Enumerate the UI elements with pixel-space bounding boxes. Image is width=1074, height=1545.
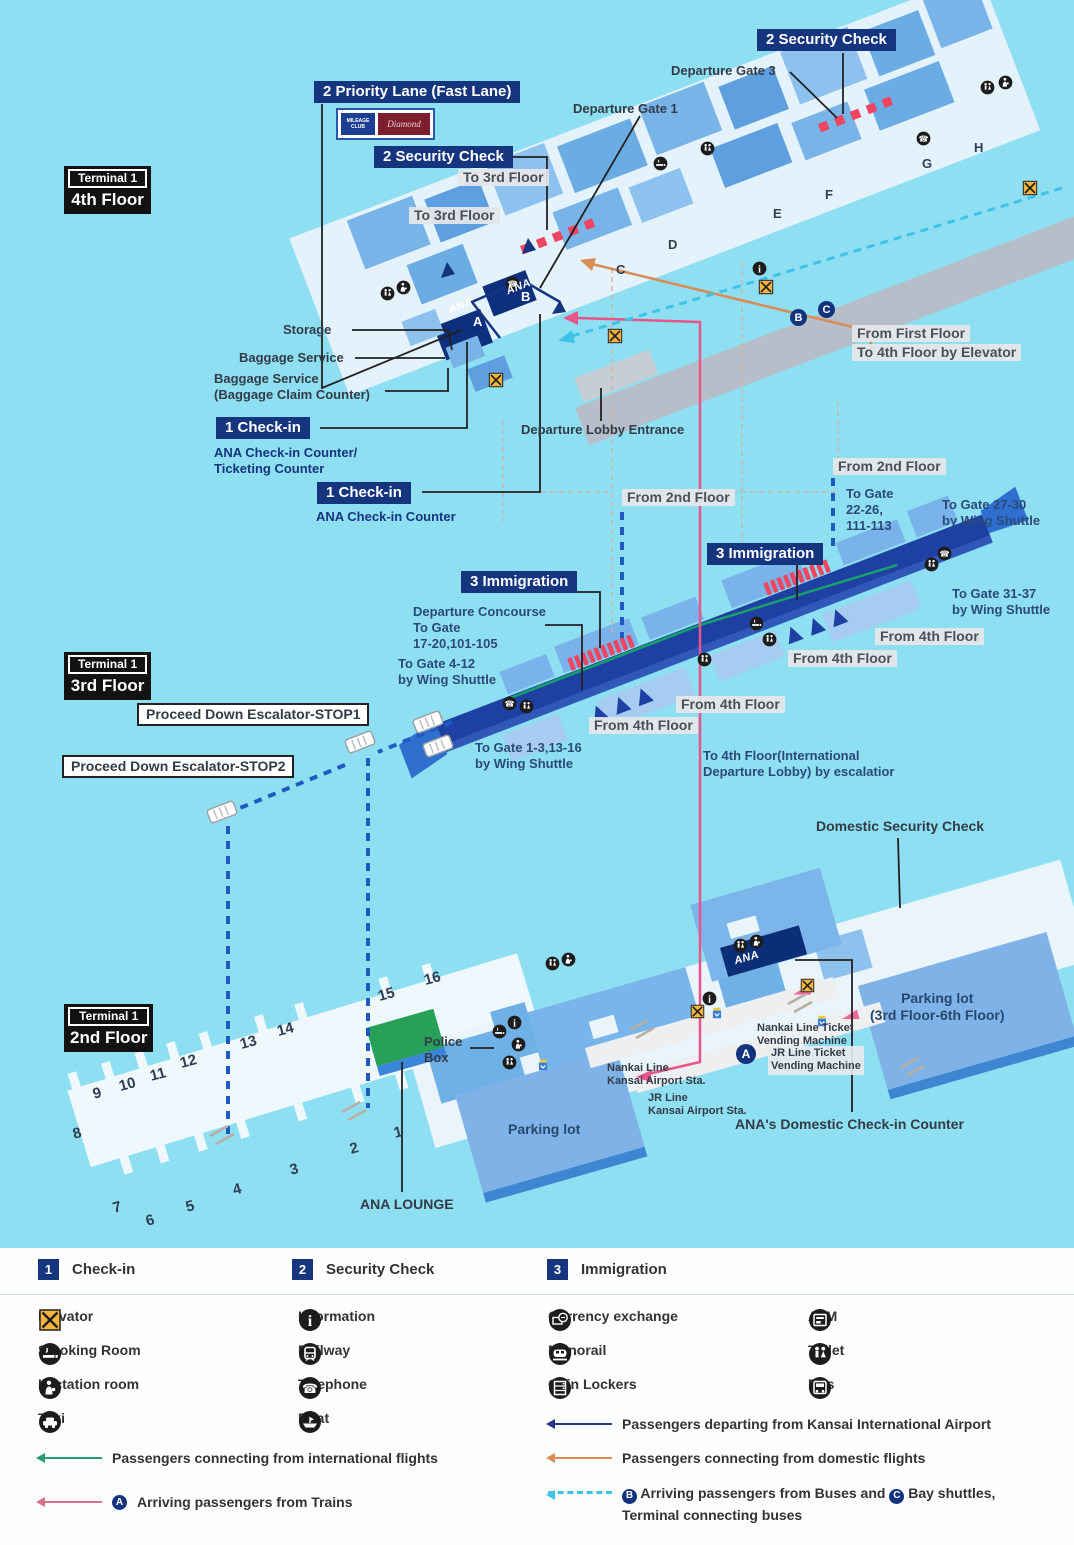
step-label: Check-in	[72, 1261, 135, 1278]
elevator-point-b-badge: B	[790, 309, 807, 326]
legend-smoking-room: Smoking Room	[38, 1342, 141, 1358]
toilet-icon	[698, 653, 712, 667]
label-departure-lobby-entrance: Departure Lobby Entrance	[521, 422, 684, 438]
toilet-icon	[546, 957, 560, 971]
international-route-line	[38, 1457, 102, 1459]
step-number: 1	[38, 1259, 59, 1280]
building-letter-d: D	[668, 237, 677, 252]
terminal-name: Terminal 1	[68, 655, 147, 674]
text-line: Kansai Airport Sta.	[607, 1075, 706, 1088]
label-from-2nd-floor-right: From 2nd Floor	[833, 458, 946, 475]
monorail-icon	[548, 1342, 572, 1366]
label-parking-lot-left: Parking lot	[508, 1121, 580, 1138]
legend-elevator: Elevator	[38, 1308, 93, 1324]
floor-badge-2f: Terminal 1 2nd Floor	[64, 1004, 153, 1052]
label-from-4th-floor-2: From 4th Floor	[788, 650, 897, 667]
label-ana-domestic: ANA's Domestic Check-in Counter	[735, 1116, 964, 1133]
step-number: 2	[292, 1259, 313, 1280]
lactation-room-icon	[999, 76, 1013, 90]
label-nankai-station: Nankai Line Kansai Airport Sta.	[607, 1062, 706, 1089]
telephone-icon	[938, 547, 952, 561]
text-line: ANA Check-in Counter/	[214, 445, 357, 461]
label-jr-tvm: JR Line Ticket Vending Machine	[768, 1046, 864, 1075]
text-line: Departure Lobby) by escalatior	[703, 764, 894, 780]
label-jr-station: JR Line Kansai Airport Sta.	[648, 1092, 747, 1119]
badge-c: C	[889, 1489, 904, 1504]
legend-route-buses: B Arriving passengers from Buses and C B…	[548, 1482, 1042, 1527]
text-line: (3rd Floor-6th Floor)	[870, 1007, 1005, 1024]
taxi-icon	[38, 1410, 62, 1434]
text-line: 111-113	[846, 518, 893, 534]
legend-coin-lockers: Coin Lockers	[548, 1376, 637, 1392]
legend-divider	[0, 1294, 1074, 1295]
text-line: To Gate 27-30	[942, 497, 1040, 513]
text-line: 22-26,	[846, 502, 893, 518]
text-line: Departure Concourse	[413, 604, 546, 620]
label-to-gate-1-3: To Gate 1-3,13-16 by Wing Shuttle	[475, 740, 582, 772]
label-checkin-b: 1 Check-in	[317, 482, 411, 504]
label-from-4th-floor-3: From 4th Floor	[676, 696, 785, 713]
floor-name: 3rd Floor	[68, 676, 147, 697]
lactation-room-icon	[562, 953, 576, 967]
toilet-icon	[925, 558, 939, 572]
terminal-name: Terminal 1	[68, 1007, 149, 1026]
label-departure-gate-3: Departure Gate 3	[671, 63, 776, 79]
label-to-gate-31-37: To Gate 31-37 by Wing Shuttle	[952, 586, 1050, 618]
label-immigration-left: 3 Immigration	[461, 571, 577, 593]
label-from-4th-floor-1: From 4th Floor	[875, 628, 984, 645]
atm-icon	[808, 1308, 832, 1332]
floor2	[63, 860, 1074, 1203]
badge-b: B	[622, 1489, 637, 1504]
coin-lockers-icon	[548, 1376, 572, 1400]
lactation-room-icon	[512, 1038, 526, 1052]
building-letter-c: C	[616, 262, 625, 277]
text-line: Baggage Service	[214, 371, 370, 387]
text-line: by Wing Shuttle	[942, 513, 1040, 529]
smoking-room-icon	[750, 617, 764, 631]
smoking-room-icon	[654, 157, 668, 171]
railway-icon	[298, 1342, 322, 1366]
label-checkin-b-sub: ANA Check-in Counter	[316, 509, 456, 525]
telephone-icon	[298, 1376, 322, 1400]
route-label: Arriving passengers from Trains	[137, 1494, 353, 1510]
building-letter-e: E	[773, 206, 782, 221]
train-arrival-a-badge: A	[736, 1044, 756, 1064]
priority-lane-cards: MILEAGE CLUB Diamond	[336, 108, 435, 140]
elevator-point-c-badge: C	[818, 301, 835, 318]
legend-bus: Bus	[808, 1376, 834, 1392]
route-label: Passengers connecting from domestic flig…	[622, 1450, 925, 1466]
trains-route-line	[38, 1501, 102, 1503]
smoking-room-icon	[493, 1025, 507, 1039]
route-label: Passengers departing from Kansai Interna…	[622, 1416, 991, 1432]
label-departure-gate-1: Departure Gate 1	[573, 101, 678, 117]
legend-route-international: Passengers connecting from international…	[38, 1450, 438, 1466]
label-checkin-a: 1 Check-in	[216, 417, 310, 439]
lactation-room-icon	[38, 1376, 62, 1400]
label-nankai-tvm: Nankai Line Ticket Vending Machine	[757, 1022, 853, 1049]
label-from-2nd-floor-mid: From 2nd Floor	[622, 489, 735, 506]
label-to-4th-floor-intl: To 4th Floor(International Departure Lob…	[703, 748, 894, 780]
buses-route-line	[548, 1491, 612, 1494]
label-departure-concourse: Departure Concourse To Gate 17-20,101-10…	[413, 604, 546, 652]
toilet-icon	[701, 142, 715, 156]
text-line: Box	[424, 1050, 462, 1066]
building-letter-h: H	[974, 140, 983, 155]
text-line: To Gate 1-3,13-16	[475, 740, 582, 756]
mileage-club-badge: MILEAGE CLUB	[341, 113, 375, 135]
telephone-icon	[917, 132, 931, 146]
text-line: To Gate 31-37	[952, 586, 1050, 602]
text-line: Police	[424, 1034, 462, 1050]
legend-telephone: Telephone	[298, 1376, 367, 1392]
legend-step-security: 2 Security Check	[292, 1259, 434, 1280]
building-letter-g: G	[922, 156, 932, 171]
toilet-icon	[734, 939, 748, 953]
ticket-machine-icon	[713, 1008, 721, 1019]
text-line: Vending Machine	[771, 1060, 861, 1073]
label-to-gate-27-30: To Gate 27-30 by Wing Shuttle	[942, 497, 1040, 529]
text-line: To 4th Floor(International	[703, 748, 894, 764]
label-checkin-a-sub: ANA Check-in Counter/ Ticketing Counter	[214, 445, 357, 477]
boat-icon	[298, 1410, 322, 1434]
toilet-icon	[503, 1056, 517, 1070]
label-to-gate-4-12: To Gate 4-12 by Wing Shuttle	[398, 656, 496, 688]
elevator-icon	[608, 329, 621, 342]
diamond-badge: Diamond	[378, 113, 430, 135]
step-label: Immigration	[581, 1261, 667, 1278]
text-line: JR Line	[648, 1092, 747, 1105]
label-from-first-floor: From First Floor To 4th Floor by Elevato…	[852, 325, 1021, 361]
step-number: 3	[547, 1259, 568, 1280]
legend: 1 Check-in 2 Security Check 3 Immigratio…	[0, 1248, 1074, 1545]
text-line: by Wing Shuttle	[952, 602, 1050, 618]
legend-toilet: Toilet	[808, 1342, 844, 1358]
text-line: To Gate	[413, 620, 546, 636]
legend-railway: Railway	[298, 1342, 350, 1358]
label-escalator-stop2: Proceed Down Escalator-STOP2	[62, 755, 294, 778]
label-baggage-claim: Baggage Service (Baggage Claim Counter)	[214, 371, 370, 403]
lactation-room-icon	[397, 281, 411, 295]
text-line: Nankai Line Ticket	[757, 1022, 853, 1035]
route-label: B Arriving passengers from Buses and C B…	[622, 1482, 1042, 1527]
elevator-icon	[489, 373, 502, 386]
badge-a: A	[112, 1495, 127, 1510]
step-label: Security Check	[326, 1261, 434, 1278]
building-letter-f: F	[825, 187, 833, 202]
information-icon	[753, 262, 767, 276]
domestic-route-line	[548, 1457, 612, 1459]
text-line: (Baggage Claim Counter)	[214, 387, 370, 403]
label-parking-lot-right: Parking lot (3rd Floor-6th Floor)	[870, 990, 1005, 1024]
label-security-check-mid: 2 Security Check	[374, 146, 513, 168]
route-label: Passengers connecting from international…	[112, 1450, 438, 1466]
smoking-room-icon	[38, 1342, 62, 1366]
text-line: 17-20,101-105	[413, 636, 546, 652]
legend-lactation-room: Lactation room	[38, 1376, 139, 1392]
label-domestic-security: Domestic Security Check	[816, 818, 984, 835]
text-line: Parking lot	[870, 990, 1005, 1007]
label-priority-lane: 2 Priority Lane (Fast Lane)	[314, 81, 520, 103]
text-line: From First Floor	[852, 325, 970, 342]
toilet-icon	[520, 700, 534, 714]
legend-monorail: Monorail	[548, 1342, 606, 1358]
legend-route-trains: A Arriving passengers from Trains	[38, 1494, 353, 1510]
label-police-box: Police Box	[424, 1034, 462, 1066]
floor-name: 4th Floor	[68, 190, 147, 211]
legend-atm: ATM	[808, 1308, 837, 1324]
label-to-3rd-floor-2: To 3rd Floor	[409, 207, 500, 224]
toilet-icon	[381, 287, 395, 301]
departing-route-line	[548, 1423, 612, 1425]
text-line: by Wing Shuttle	[475, 756, 582, 772]
floor-badge-4f: Terminal 1 4th Floor	[64, 166, 151, 214]
text-line: To 4th Floor by Elevator	[852, 344, 1021, 361]
label-storage: Storage	[283, 322, 331, 338]
floor-name: 2nd Floor	[68, 1028, 149, 1049]
text-line: by Wing Shuttle	[398, 672, 496, 688]
lactation-room-icon	[750, 935, 764, 949]
floor-badge-3f: Terminal 1 3rd Floor	[64, 652, 151, 700]
legend-route-departing: Passengers departing from Kansai Interna…	[548, 1416, 991, 1432]
text-line: To Gate	[846, 486, 893, 502]
label-immigration-right: 3 Immigration	[707, 543, 823, 565]
terminal-name: Terminal 1	[68, 169, 147, 188]
legend-step-checkin: 1 Check-in	[38, 1259, 135, 1280]
label-security-check-top: 2 Security Check	[757, 29, 896, 51]
building-letter-a: A	[473, 314, 482, 329]
label-from-4th-floor-4: From 4th Floor	[589, 717, 698, 734]
label-to-gate-22: To Gate 22-26, 111-113	[846, 486, 893, 534]
currency-exchange-icon	[548, 1308, 572, 1332]
elevator-icon	[1023, 181, 1036, 194]
elevator-icon	[801, 979, 814, 992]
legend-route-domestic: Passengers connecting from domestic flig…	[548, 1450, 925, 1466]
information-icon	[703, 992, 717, 1006]
label-baggage-service: Baggage Service	[239, 350, 344, 366]
legend-currency-exchange: Currency exchange	[548, 1308, 678, 1324]
text-line: JR Line Ticket	[771, 1047, 861, 1060]
text-line: Kansai Airport Sta.	[648, 1105, 747, 1118]
ticket-machine-icon	[539, 1060, 547, 1071]
legend-boat: Boat	[298, 1410, 329, 1426]
information-icon	[298, 1308, 322, 1332]
toilet-icon	[981, 81, 995, 95]
elevator-icon	[759, 280, 772, 293]
text-line: Nankai Line	[607, 1062, 706, 1075]
legend-information: Information	[298, 1308, 375, 1324]
bus-icon	[808, 1376, 832, 1400]
toilet-icon	[763, 633, 777, 647]
legend-step-immigration: 3 Immigration	[547, 1259, 667, 1280]
airport-terminal-map: i ☎	[0, 0, 1074, 1545]
route-label-part1: Arriving passengers from Buses and	[640, 1485, 885, 1501]
label-escalator-stop1: Proceed Down Escalator-STOP1	[137, 703, 369, 726]
label-to-3rd-floor-1: To 3rd Floor	[458, 169, 549, 186]
legend-taxi: Taxi	[38, 1410, 65, 1426]
text-line: Ticketing Counter	[214, 461, 357, 477]
elevator-icon	[38, 1308, 62, 1332]
information-icon	[508, 1016, 522, 1030]
telephone-icon	[503, 697, 517, 711]
elevator-icon	[691, 1005, 704, 1018]
label-ana-lounge: ANA LOUNGE	[360, 1196, 454, 1213]
toilet-icon	[808, 1342, 832, 1366]
text-line: To Gate 4-12	[398, 656, 496, 672]
